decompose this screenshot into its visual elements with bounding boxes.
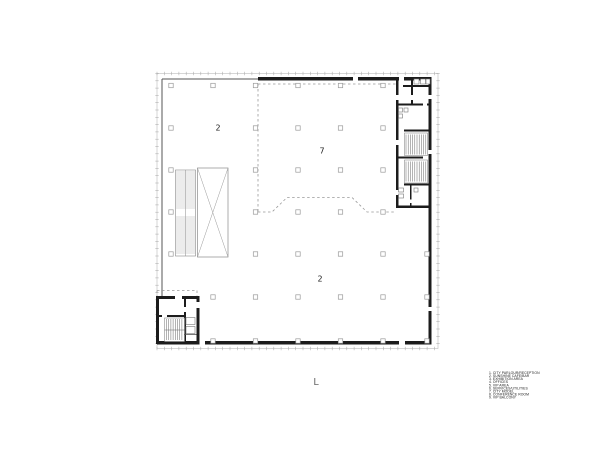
legend-list: 1. CITY PARLOUR/RECEPTION2. SUNSHINE CAF… — [489, 372, 559, 400]
area-2-lower: 2 — [317, 275, 322, 284]
level-label: L — [308, 377, 324, 388]
legend-item-9: 9. VIP BALCONY — [489, 397, 559, 400]
legend: 1. CITY PARLOUR/RECEPTION2. SUNSHINE CAF… — [489, 372, 559, 400]
drawing-page: 272 L 1. CITY PARLOUR/RECEPTION2. SUNSHI… — [0, 0, 600, 450]
area-7-center: 7 — [319, 147, 324, 156]
area-2-upper: 2 — [215, 124, 220, 133]
